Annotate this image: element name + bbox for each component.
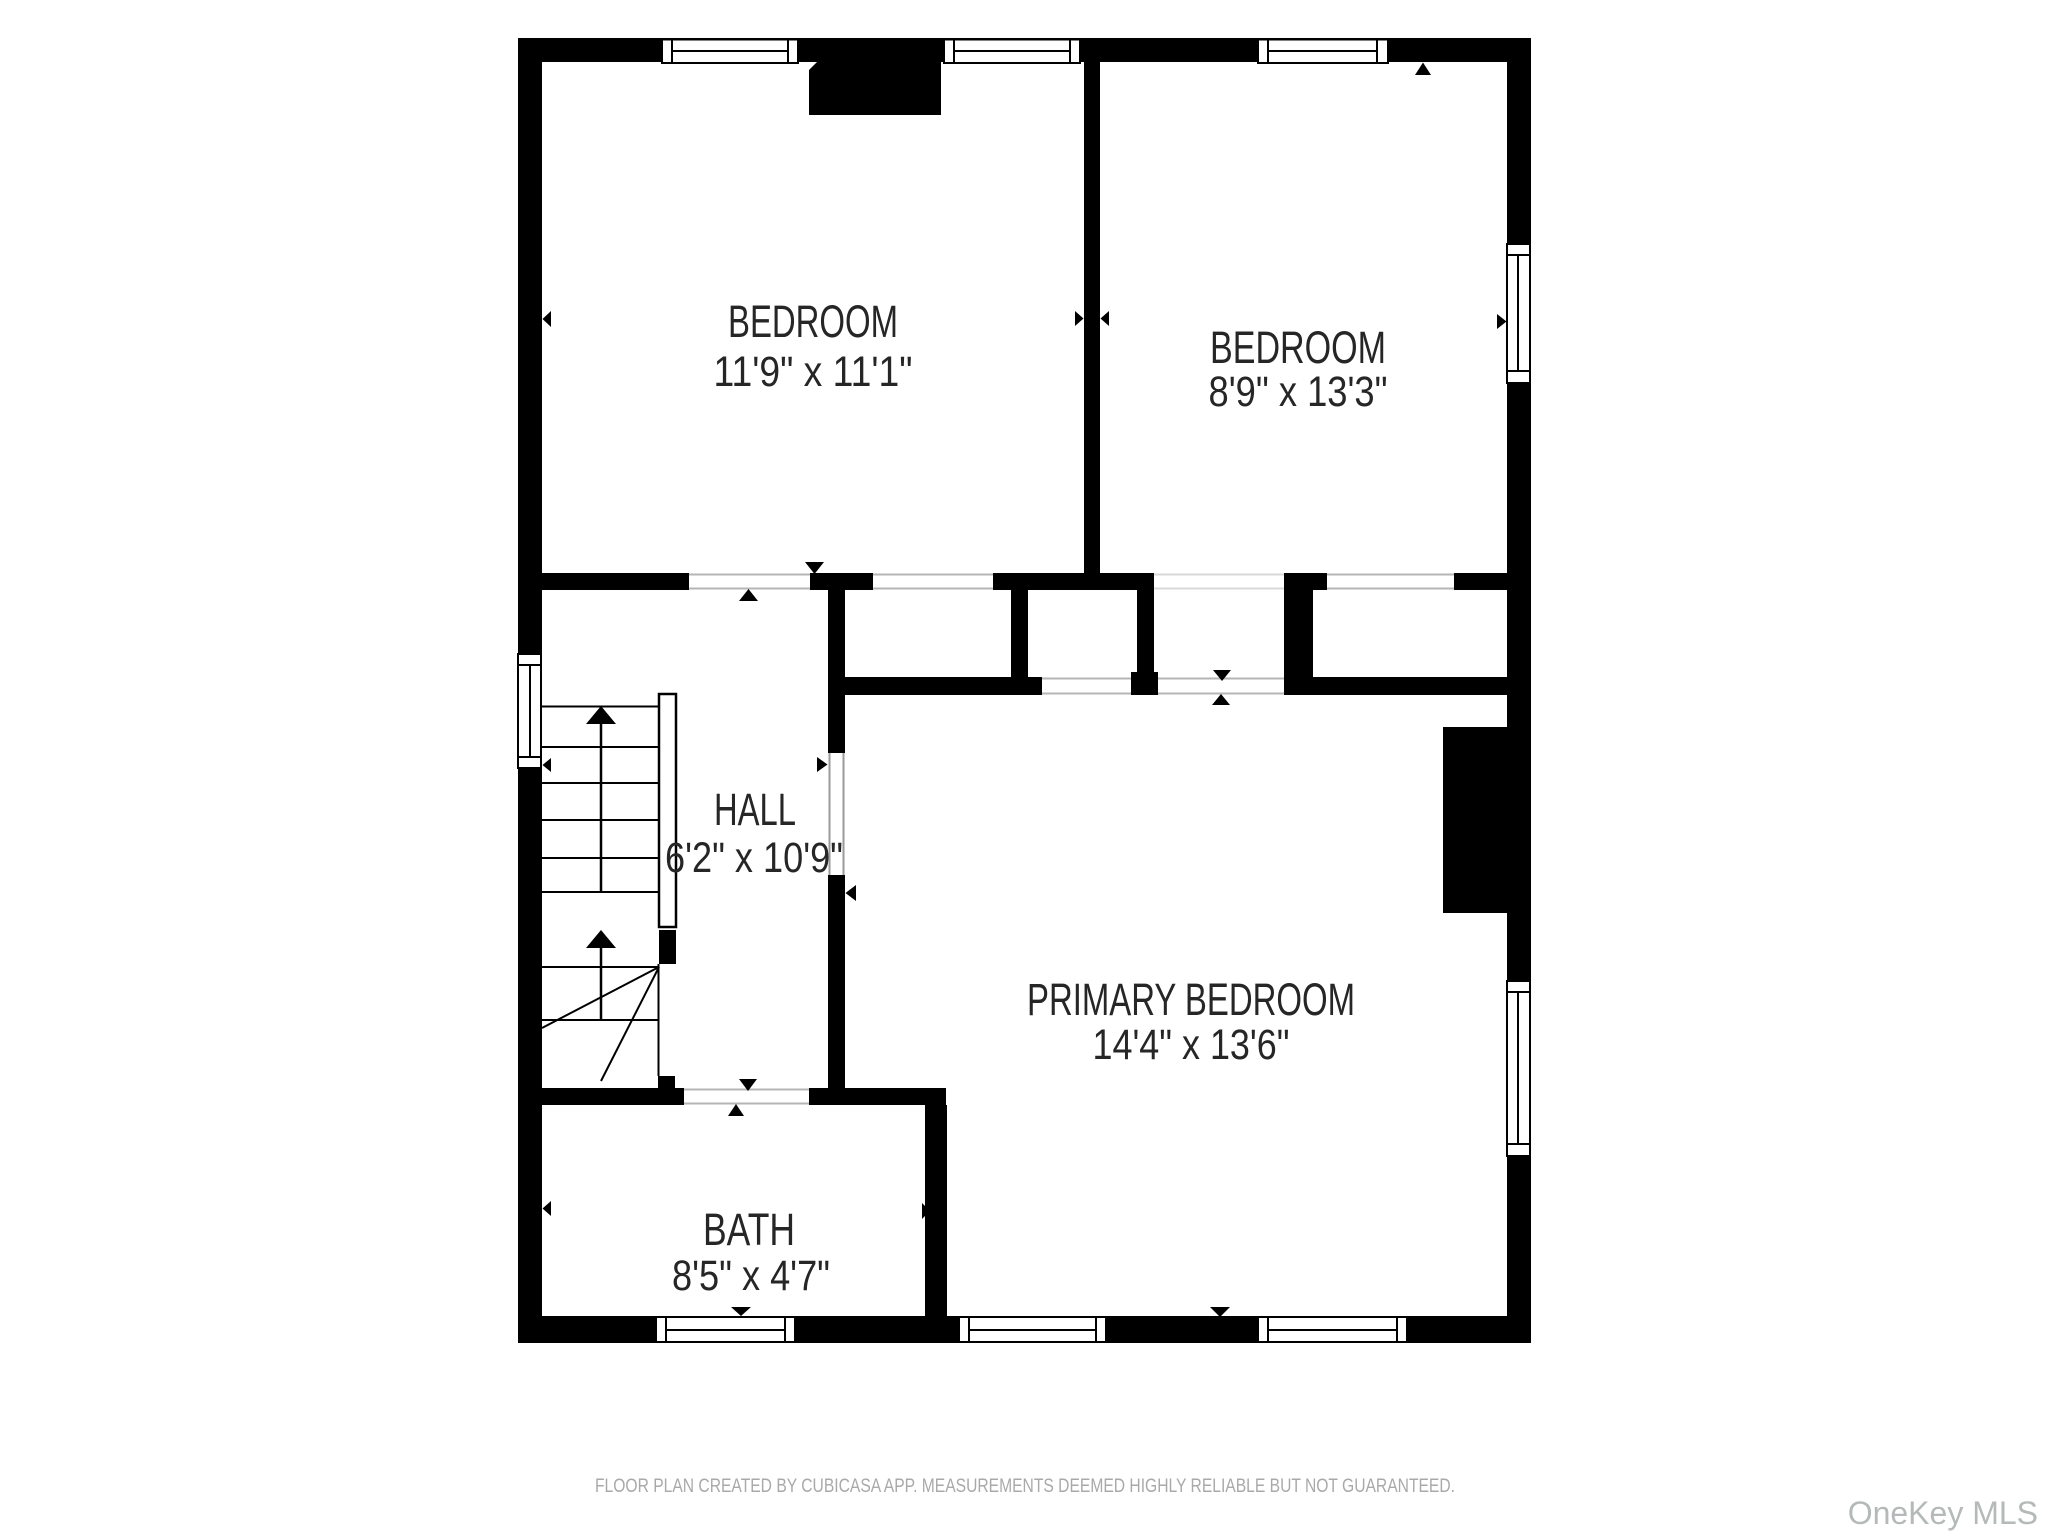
svg-text:OneKey MLS: OneKey MLS [1848, 1495, 2038, 1531]
svg-text:BEDROOM: BEDROOM [728, 296, 898, 347]
svg-text:BATH: BATH [703, 1204, 795, 1255]
svg-text:BEDROOM: BEDROOM [1210, 322, 1386, 373]
svg-text:FLOOR PLAN CREATED BY CUBICASA: FLOOR PLAN CREATED BY CUBICASA APP. MEAS… [595, 1476, 1455, 1497]
svg-text:8'9" x 13'3": 8'9" x 13'3" [1209, 368, 1388, 416]
svg-text:PRIMARY BEDROOM: PRIMARY BEDROOM [1027, 974, 1355, 1025]
svg-text:HALL: HALL [714, 784, 796, 835]
svg-text:8'5" x 4'7": 8'5" x 4'7" [672, 1252, 830, 1300]
svg-text:11'9" x 11'1": 11'9" x 11'1" [714, 348, 913, 396]
svg-text:14'4" x 13'6": 14'4" x 13'6" [1093, 1021, 1290, 1069]
svg-text:6'2" x 10'9": 6'2" x 10'9" [665, 834, 843, 882]
